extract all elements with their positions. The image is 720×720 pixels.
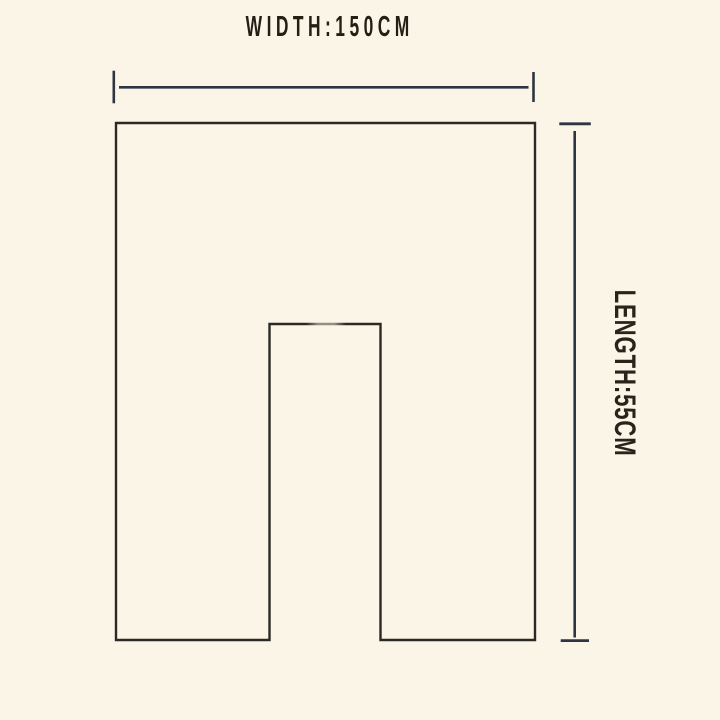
svg-text:LENGTH:55CM: LENGTH:55CM: [608, 290, 642, 457]
svg-text:WIDTH:150CM: WIDTH:150CM: [246, 10, 414, 43]
